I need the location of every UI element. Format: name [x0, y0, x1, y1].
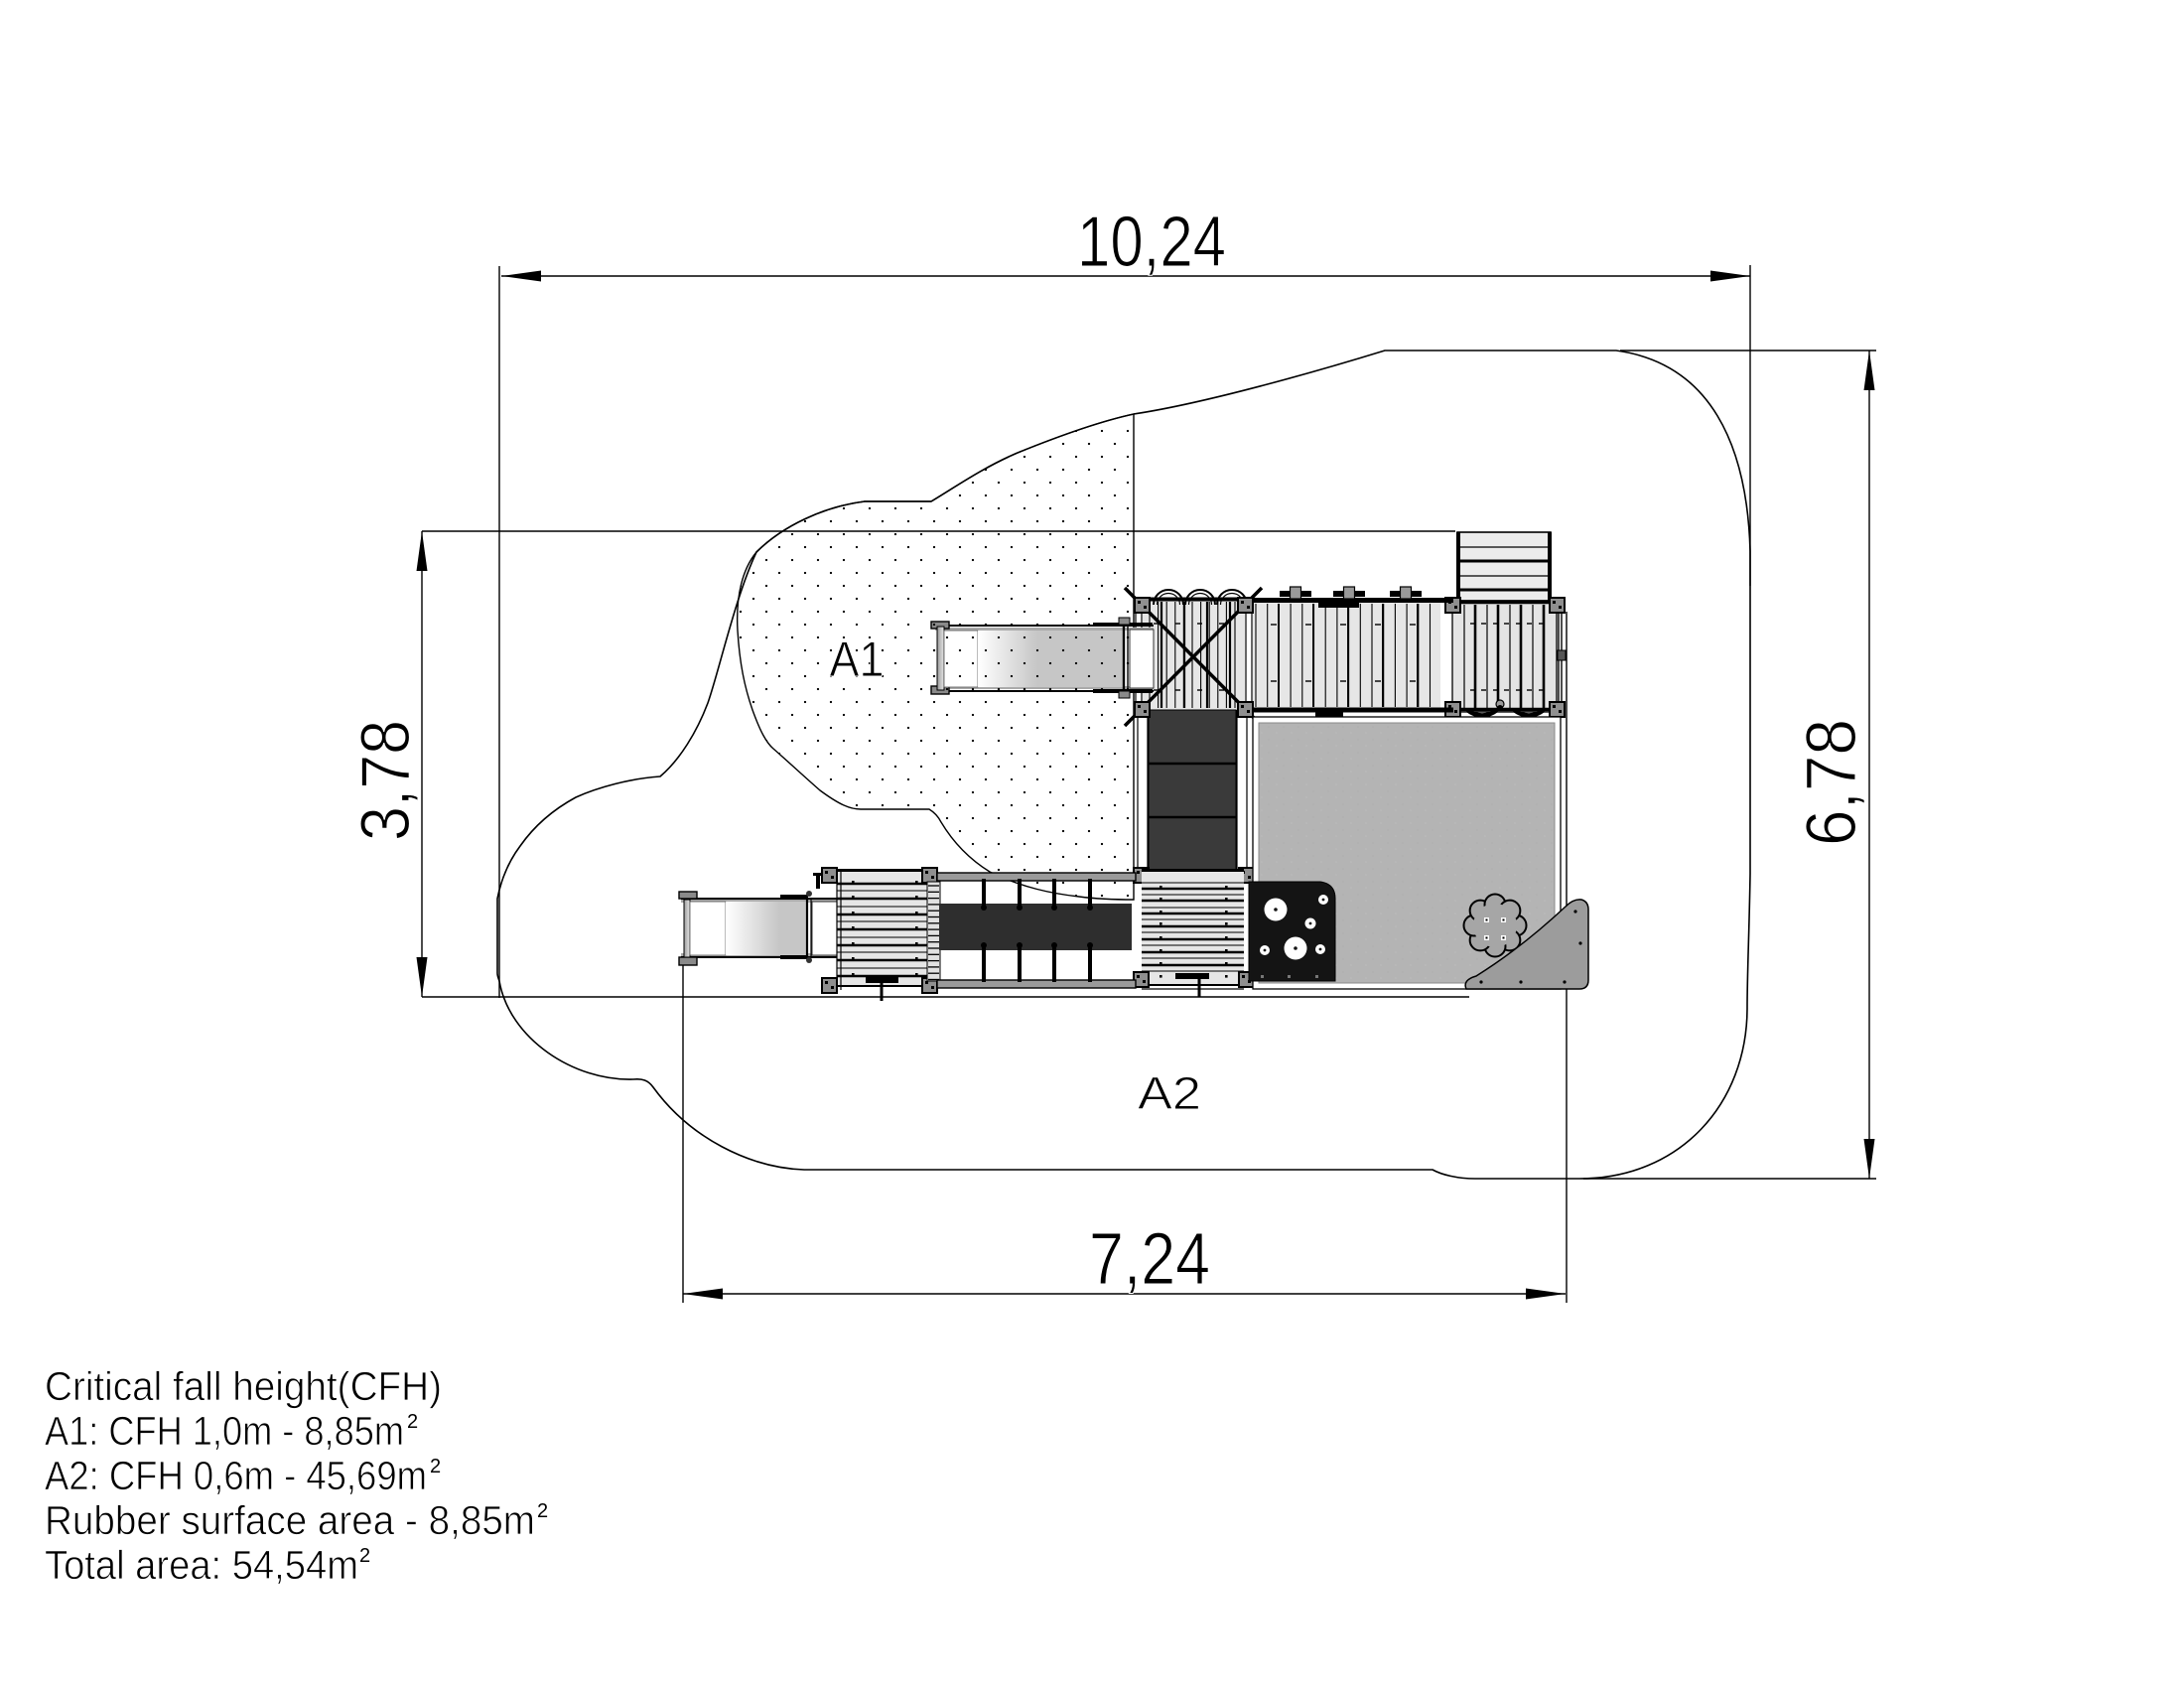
svg-text:2: 2	[407, 1411, 418, 1433]
svg-text:A2: A2	[1138, 1067, 1201, 1119]
svg-text:3,78: 3,78	[346, 720, 424, 841]
svg-text:A1: CFH 1,0m - 8,85m: A1: CFH 1,0m - 8,85m	[45, 1408, 404, 1454]
svg-text:2: 2	[359, 1545, 370, 1567]
svg-text:Rubber surface area - 8,85m: Rubber surface area - 8,85m	[45, 1497, 535, 1543]
svg-text:7,24: 7,24	[1089, 1217, 1210, 1300]
svg-text:10,24: 10,24	[1077, 203, 1226, 282]
svg-text:6,78: 6,78	[1793, 719, 1871, 846]
svg-text:A2: CFH 0,6m - 45,69m: A2: CFH 0,6m - 45,69m	[45, 1453, 427, 1498]
svg-text:Total area: 54,54m: Total area: 54,54m	[45, 1542, 358, 1588]
svg-text:Critical fall height(CFH): Critical fall height(CFH)	[45, 1363, 442, 1409]
svg-text:2: 2	[430, 1456, 441, 1477]
svg-text:2: 2	[537, 1500, 548, 1522]
svg-text:A1: A1	[830, 632, 885, 687]
